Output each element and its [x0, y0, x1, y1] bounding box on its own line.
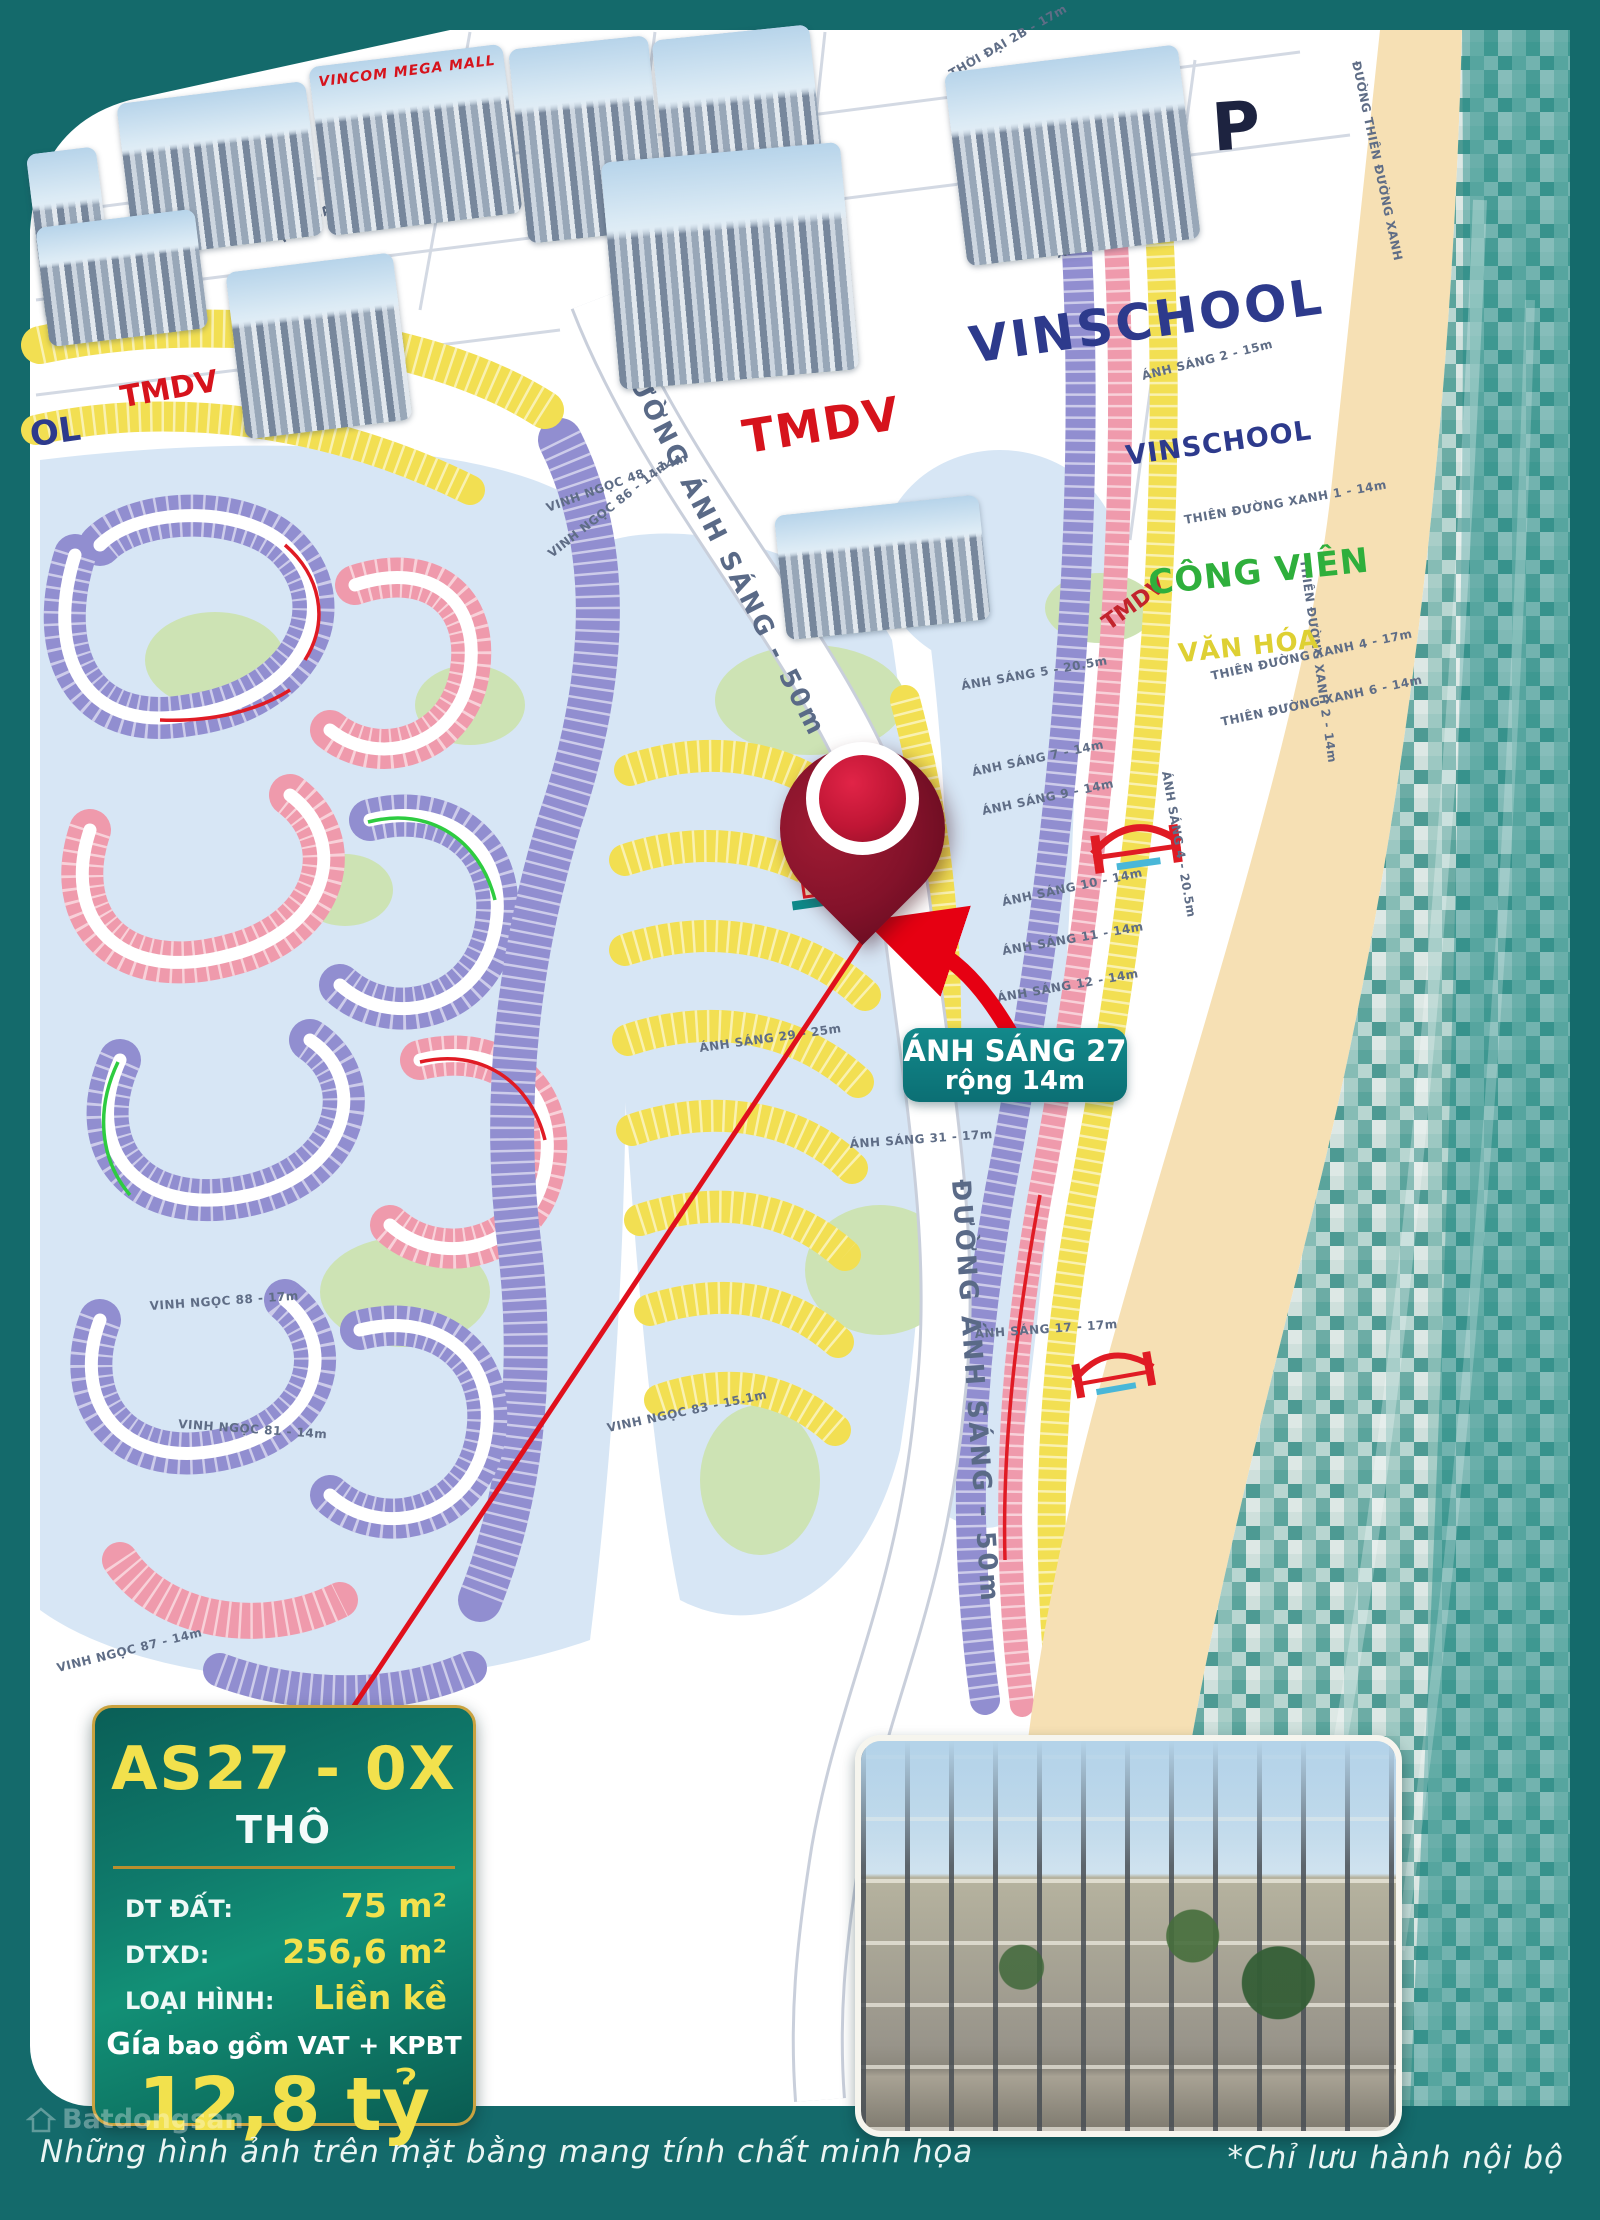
building-render	[225, 252, 412, 439]
row-value: 256,6 m²	[282, 1932, 447, 1971]
building-render	[774, 495, 991, 641]
listing-card: AS27 - 0X THÔ DT ĐẤT: 75 m² DTXD: 256,6 …	[92, 1705, 476, 2126]
row-label: DT ĐẤT:	[125, 1895, 233, 1923]
row-value: Liền kề	[313, 1978, 447, 2017]
card-row: LOẠI HÌNH: Liền kề	[95, 1971, 473, 2017]
row-label: DTXD:	[125, 1941, 209, 1969]
building-render	[944, 44, 1201, 266]
row-label: LOẠI HÌNH:	[125, 1987, 274, 2015]
row-value: 75 m²	[341, 1886, 447, 1925]
callout-street-width: rộng 14m	[945, 1067, 1085, 1095]
poster: VINH NGỌC 48 - 14m VINH NGỌC 86 - 14m VI…	[0, 0, 1600, 2220]
lot-condition: THÔ	[95, 1808, 473, 1852]
watermark: Batdongsan	[26, 2104, 244, 2135]
price-note-rest: bao gồm VAT + KPBT	[167, 2031, 462, 2060]
vincom-mall-render: VINCOM MEGA MALL	[308, 44, 522, 236]
callout-street-name: ÁNH SÁNG 27	[904, 1035, 1127, 1067]
vinschool-clipped-label: OL	[27, 409, 83, 456]
card-row: DTXD: 256,6 m²	[95, 1925, 473, 1971]
house-icon	[26, 2105, 56, 2135]
pin-core	[819, 755, 906, 842]
internal-use-caption: *Chỉ lưu hành nội bộ	[1227, 2140, 1564, 2176]
shophouse-render-inset	[855, 1735, 1402, 2137]
lot-code: AS27 - 0X	[95, 1734, 473, 1804]
building-render	[601, 142, 860, 390]
parking-label: P	[1209, 86, 1263, 166]
price-note-prefix: Gía	[106, 2027, 161, 2062]
street-callout: ÁNH SÁNG 27 rộng 14m	[903, 1028, 1127, 1102]
building-render	[35, 209, 208, 348]
watermark-text: Batdongsan	[62, 2104, 244, 2135]
divider	[113, 1866, 455, 1869]
price-note: Gía bao gồm VAT + KPBT	[95, 2027, 473, 2062]
disclaimer-caption: Những hình ảnh trên mặt bằng mang tính c…	[40, 2134, 973, 2170]
card-row: DT ĐẤT: 75 m²	[95, 1879, 473, 1925]
